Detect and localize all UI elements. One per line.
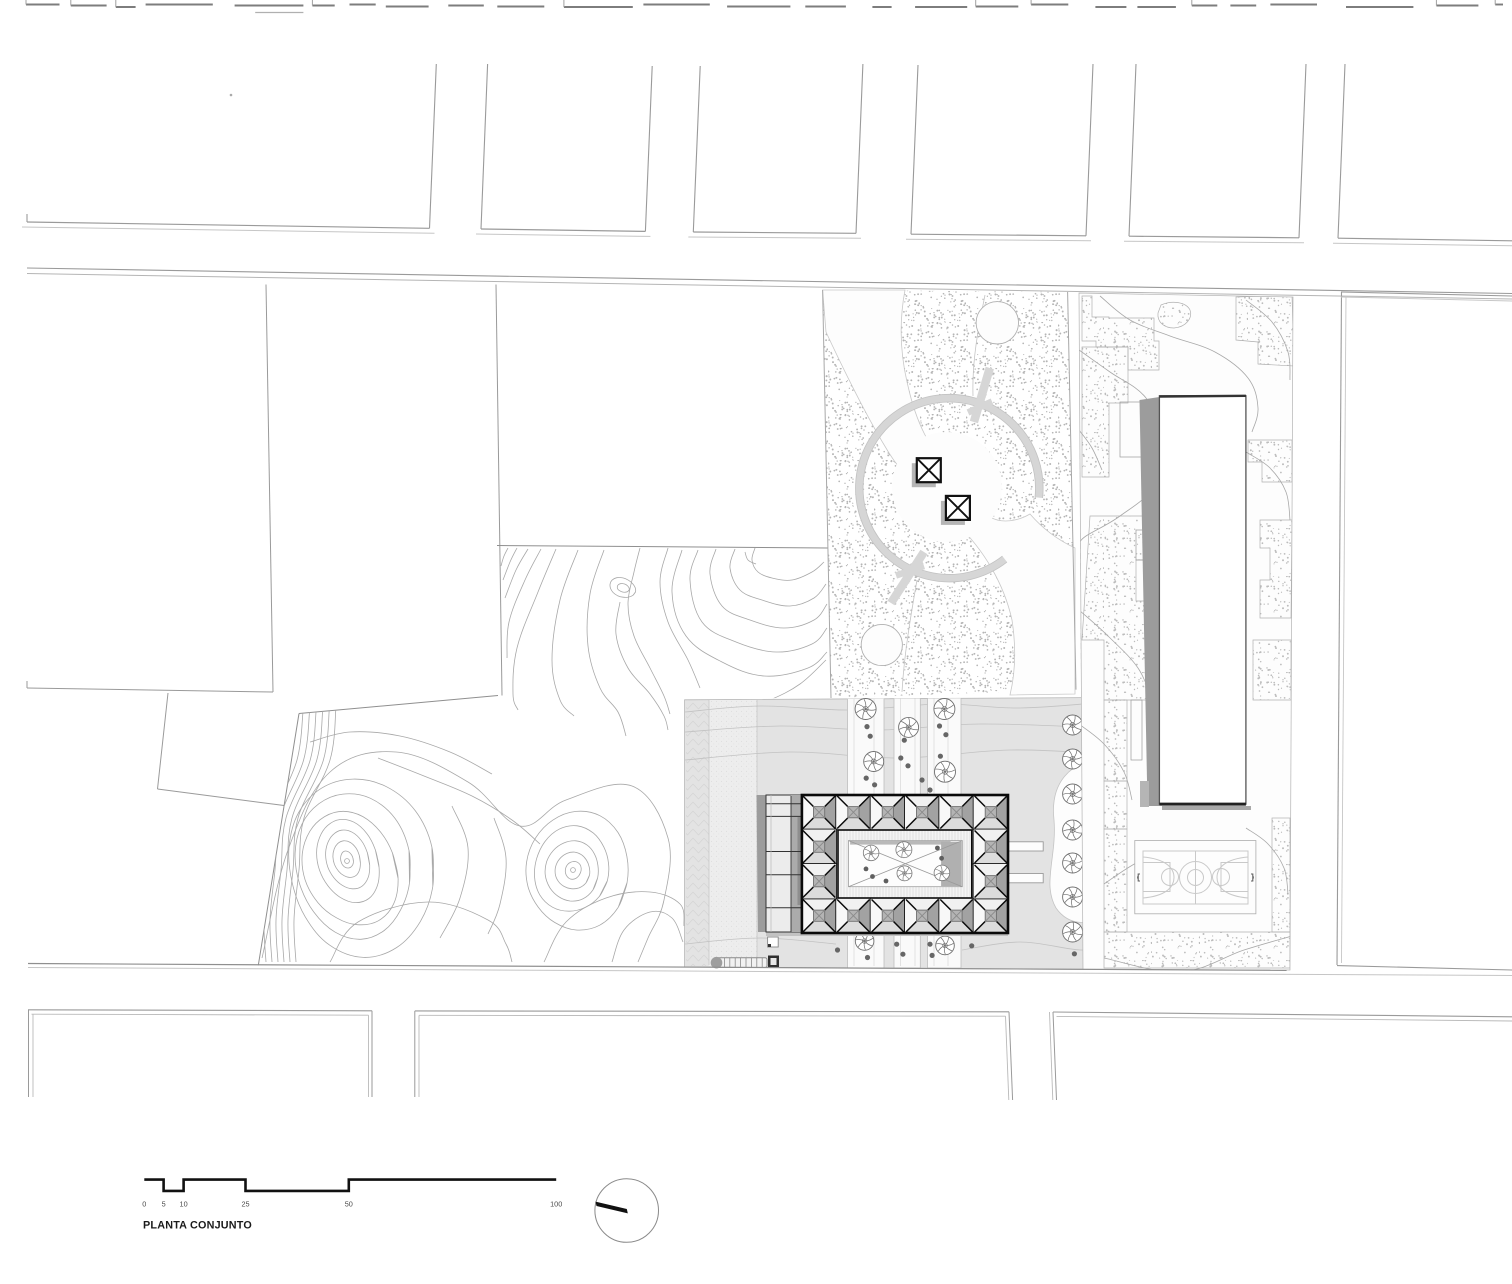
svg-text:0: 0 — [142, 1200, 146, 1209]
svg-text:10: 10 — [180, 1200, 188, 1209]
svg-text:100: 100 — [550, 1200, 562, 1209]
svg-text:50: 50 — [345, 1200, 353, 1209]
svg-text:5: 5 — [162, 1200, 166, 1209]
svg-text:PLANTA CONJUNTO: PLANTA CONJUNTO — [143, 1220, 252, 1232]
svg-text:25: 25 — [241, 1200, 249, 1209]
